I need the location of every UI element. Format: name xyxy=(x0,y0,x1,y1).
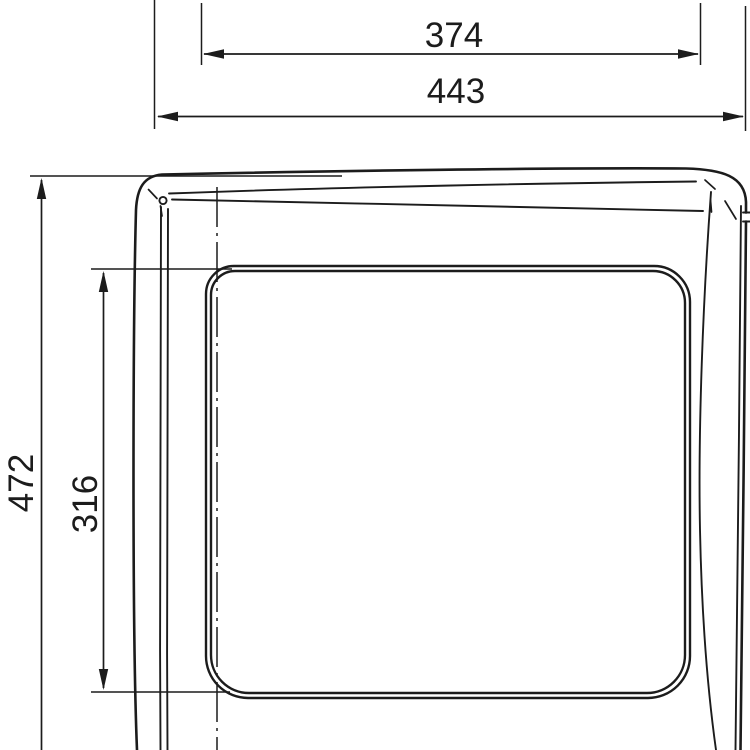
arrowhead-down-icon xyxy=(99,669,108,690)
lid-outline-outer xyxy=(206,266,690,698)
body-left-wall-line xyxy=(167,209,168,750)
dimension-height-overall: 472 xyxy=(2,176,342,750)
appliance-body xyxy=(134,168,750,750)
technical-drawing-page: 374 443 472 316 xyxy=(0,0,750,750)
arrowhead-up-icon xyxy=(37,178,46,199)
body-outline xyxy=(134,168,747,750)
dimension-value-443: 443 xyxy=(427,72,485,111)
hidden-edge-dash xyxy=(149,190,158,199)
hinge-pivot-icon xyxy=(159,197,166,204)
arrowhead-left-icon xyxy=(203,49,224,58)
dimension-value-472: 472 xyxy=(2,454,41,512)
dimension-width-inner: 374 xyxy=(202,3,701,65)
lid-outline-inner xyxy=(211,271,685,693)
arrowhead-right-icon xyxy=(678,49,699,58)
hidden-edge-dash xyxy=(725,201,736,219)
arrowhead-up-icon xyxy=(99,271,108,292)
hidden-edge-dash xyxy=(705,180,715,189)
top-panel-back-edge xyxy=(169,182,696,194)
body-right-edge xyxy=(741,222,747,750)
arrowhead-right-icon xyxy=(723,112,744,121)
dimension-value-316: 316 xyxy=(66,475,105,533)
body-right-contour xyxy=(700,192,716,750)
top-panel-front-edge xyxy=(172,200,703,212)
arrowhead-left-icon xyxy=(157,112,178,121)
body-left-wall-line xyxy=(160,207,161,750)
dimension-drawing: 374 443 472 316 xyxy=(0,0,750,750)
dimension-value-374: 374 xyxy=(425,16,483,55)
hidden-edge-dash xyxy=(711,200,712,212)
lid-opening xyxy=(206,266,690,698)
